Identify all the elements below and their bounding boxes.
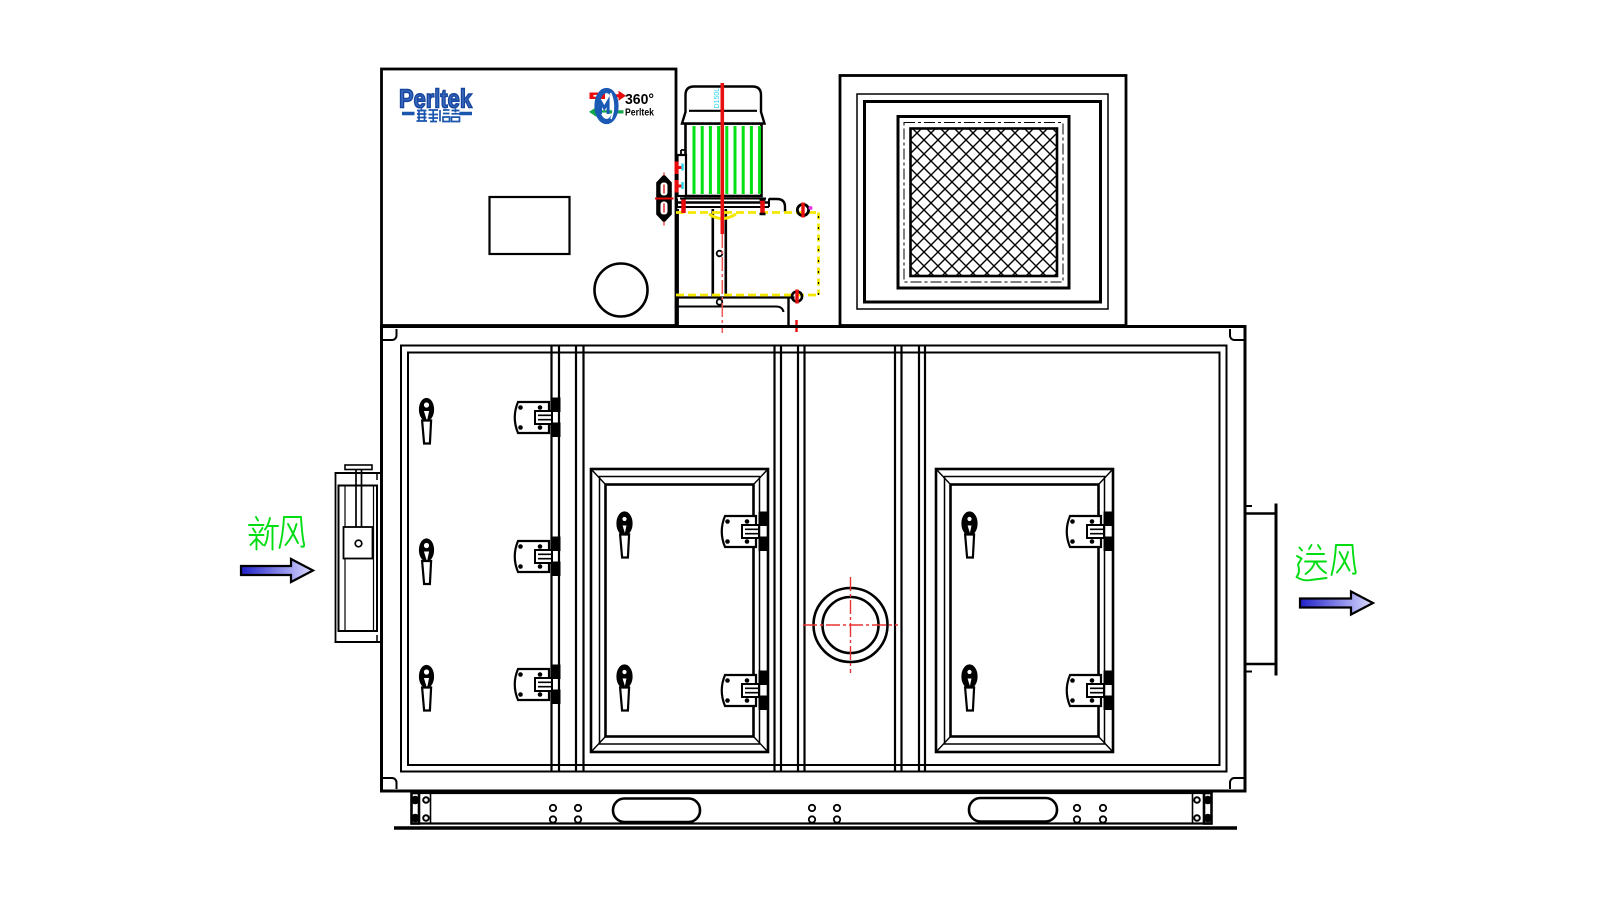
svg-text:360°: 360° bbox=[625, 91, 654, 108]
svg-text:Perltek: Perltek bbox=[625, 108, 654, 119]
svg-text:Perltek: Perltek bbox=[399, 84, 472, 114]
svg-text:D150L: D150L bbox=[714, 88, 721, 109]
